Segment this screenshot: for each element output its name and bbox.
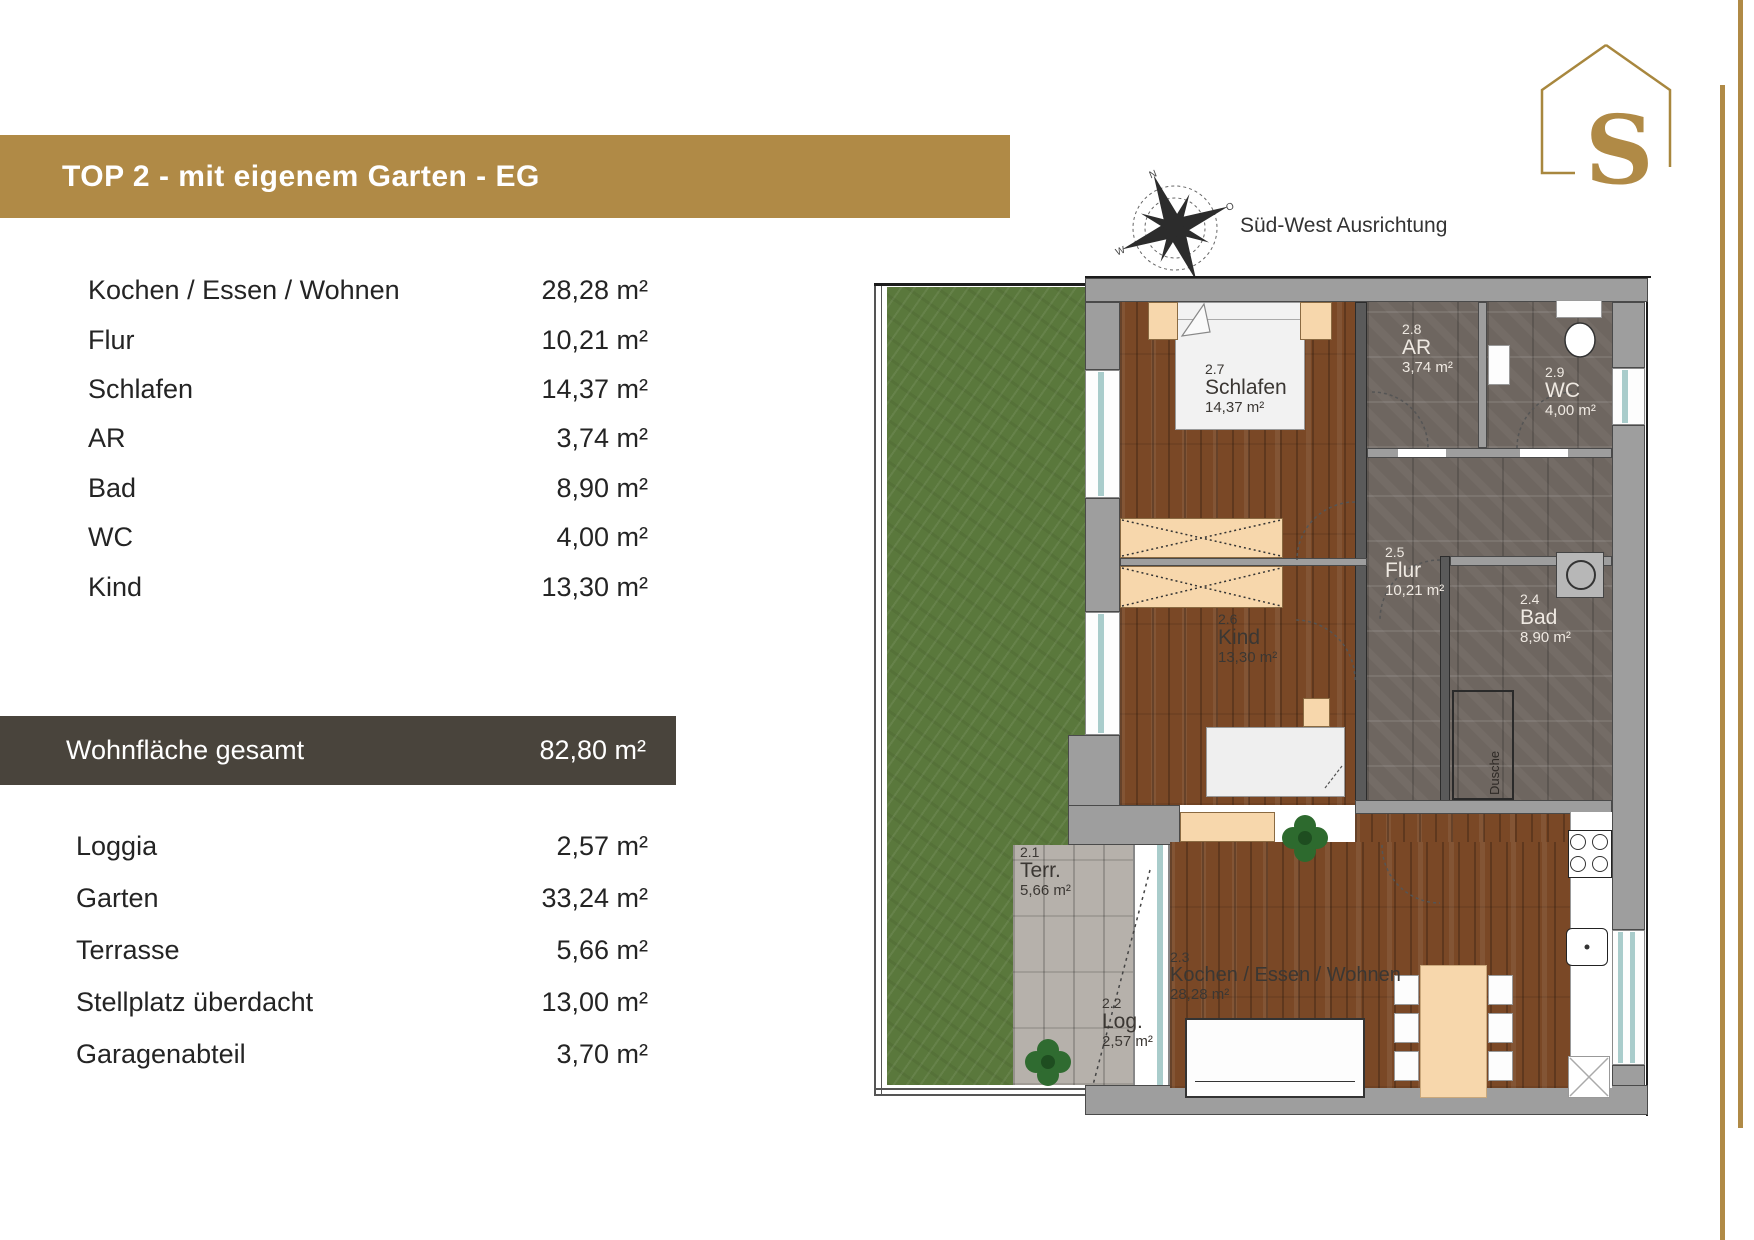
room-area: 13,30 m²: [541, 572, 648, 603]
logo-letter: S: [1585, 95, 1654, 195]
room-label: Garten: [66, 883, 159, 914]
table-row: Kochen / Essen / Wohnen28,28 m²: [66, 266, 648, 315]
gold-line-outer: [1738, 0, 1743, 1128]
room-label: Kochen / Essen / Wohnen: [66, 275, 400, 306]
total-label: Wohnfläche gesamt: [66, 735, 304, 766]
title-banner: TOP 2 - mit eigenem Garten - EG: [0, 135, 1010, 218]
svg-text:N: N: [1148, 168, 1159, 181]
room-label-flur: 2.5Flur10,21 m²: [1385, 545, 1444, 599]
room-area: 3,70 m²: [556, 1039, 648, 1070]
table-row: Stellplatz überdacht13,00 m²: [66, 976, 648, 1028]
brand-logo-icon: S: [1530, 35, 1680, 195]
plant-icon: [1025, 1039, 1071, 1086]
room-area: 10,21 m²: [541, 325, 648, 356]
room-label-kind: 2.6Kind13,30 m²: [1218, 612, 1277, 666]
room-label: Stellplatz überdacht: [66, 987, 313, 1018]
table-row: Kind13,30 m²: [66, 562, 648, 611]
room-area: 33,24 m²: [541, 883, 648, 914]
room-area: 13,00 m²: [541, 987, 648, 1018]
total-value: 82,80 m²: [539, 735, 646, 766]
room-label-kochen: 2.3Kochen / Essen / Wohnen28,28 m²: [1170, 950, 1401, 1003]
room-area: 2,57 m²: [556, 831, 648, 862]
room-label: WC: [66, 522, 133, 553]
table-row: Garagenabteil3,70 m²: [66, 1028, 648, 1080]
room-label: Schlafen: [66, 374, 193, 405]
table-row: AR3,74 m²: [66, 414, 648, 463]
room-label-schlafen: 2.7Schlafen14,37 m²: [1205, 362, 1287, 416]
plant-icon: [1282, 815, 1328, 862]
total-area-bar: Wohnfläche gesamt 82,80 m²: [0, 716, 676, 785]
table-row: Loggia2,57 m²: [66, 820, 648, 872]
shower-label: Dusche: [1487, 695, 1502, 795]
room-area: 3,74 m²: [556, 423, 648, 454]
room-label: Flur: [66, 325, 135, 356]
table-row: WC4,00 m²: [66, 513, 648, 562]
orientation-label: Süd-West Ausrichtung: [1240, 214, 1447, 238]
table-row: Bad8,90 m²: [66, 464, 648, 513]
svg-text:O: O: [1224, 201, 1236, 214]
table-row: Flur10,21 m²: [66, 315, 648, 364]
room-area: 8,90 m²: [556, 473, 648, 504]
table-row: Terrasse5,66 m²: [66, 924, 648, 976]
room-label-wc: 2.9WC4,00 m²: [1545, 365, 1596, 419]
room-label-bad: 2.4Bad8,90 m²: [1520, 592, 1571, 646]
interior-room-table: Kochen / Essen / Wohnen28,28 m² Flur10,2…: [66, 266, 648, 612]
room-label-loggia: 2.2Log.2,57 m²: [1102, 996, 1153, 1050]
room-label-terrasse: 2.1Terr.5,66 m²: [1020, 845, 1071, 899]
room-area: 5,66 m²: [556, 935, 648, 966]
room-label: Bad: [66, 473, 136, 504]
room-label: Loggia: [66, 831, 157, 862]
room-label: Garagenabteil: [66, 1039, 246, 1070]
room-label: Kind: [66, 572, 142, 603]
room-label: Terrasse: [66, 935, 180, 966]
page-title: TOP 2 - mit eigenem Garten - EG: [62, 160, 540, 194]
room-label: AR: [66, 423, 126, 454]
outdoor-area-table: Loggia2,57 m² Garten33,24 m² Terrasse5,6…: [66, 820, 648, 1080]
room-area: 28,28 m²: [541, 275, 648, 306]
gold-line-inner: [1720, 85, 1725, 1240]
floorplan-page: TOP 2 - mit eigenem Garten - EG S N O S …: [0, 0, 1754, 1240]
room-area: 14,37 m²: [541, 374, 648, 405]
table-row: Garten33,24 m²: [66, 872, 648, 924]
room-area: 4,00 m²: [556, 522, 648, 553]
room-label-ar: 2.8AR3,74 m²: [1402, 322, 1453, 376]
table-row: Schlafen14,37 m²: [66, 365, 648, 414]
